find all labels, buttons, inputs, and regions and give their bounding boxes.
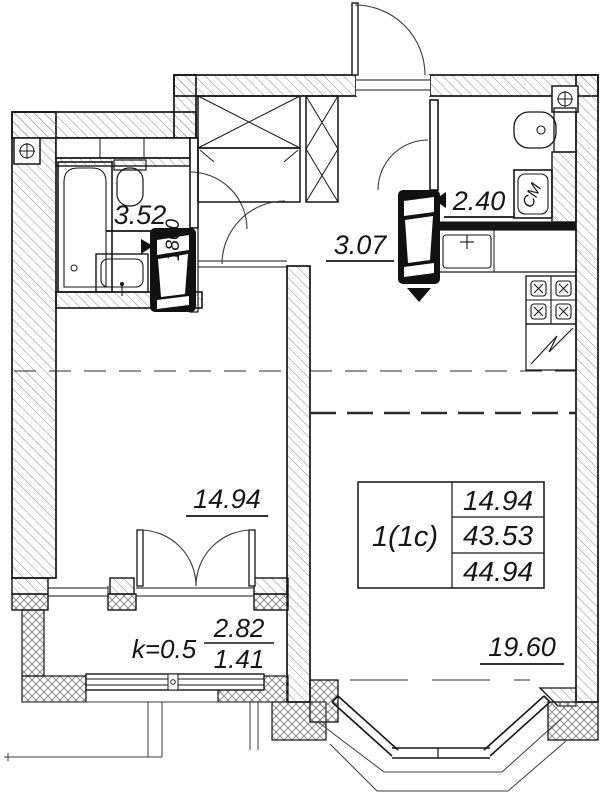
unit-type: 1(1c) <box>372 521 438 553</box>
room-area-bathroom: 3.52 <box>114 200 167 230</box>
table-total-area: 44.94 <box>463 556 533 587</box>
balcony-french-door <box>137 530 255 586</box>
door-swing-marker <box>407 288 431 302</box>
room-area-toilet: 2.40 <box>452 186 506 216</box>
wc-bottom-wall <box>430 222 576 230</box>
table-living-area: 14.94 <box>463 485 533 516</box>
entrance-door <box>352 3 430 96</box>
bay-glass <box>332 696 550 758</box>
shaft-cabinet <box>56 138 190 158</box>
floor-plan-drawing: 3.52 1800 3.07 2.40 СМ 14.94 19.60 k=0.5… <box>0 0 600 795</box>
wc-door-swing <box>378 140 428 190</box>
balcony-glazing <box>86 674 264 690</box>
bathtub-length-label: 1800 <box>163 218 184 261</box>
kitchen-sink <box>443 235 491 268</box>
room-area-living: 14.94 <box>193 484 261 514</box>
stove-icon <box>526 276 576 324</box>
balcony-area-reduced: 1.41 <box>214 644 265 674</box>
room-area-kitchen: 19.60 <box>488 632 556 662</box>
wc-left-wall <box>430 100 438 190</box>
washing-machine-label: СМ <box>520 180 546 210</box>
kitchen-counter <box>438 230 576 272</box>
balcony-coefficient: k=0.5 <box>132 634 197 664</box>
bathroom-right-wall <box>190 138 198 228</box>
fridge-icon <box>526 324 576 370</box>
balcony-area-full: 2.82 <box>213 613 265 643</box>
projection-lines <box>4 702 288 761</box>
hallway-wardrobes <box>198 96 338 267</box>
kitchen-fixtures <box>438 230 576 370</box>
balcony-door-window <box>48 586 254 598</box>
room-area-hallway: 3.07 <box>334 230 388 260</box>
bathroom-sink <box>96 254 148 296</box>
floor-plan-page: 3.52 1800 3.07 2.40 СМ 14.94 19.60 k=0.5… <box>0 0 600 795</box>
bay-outline <box>318 718 566 791</box>
wc-toilet-icon <box>514 108 576 152</box>
bay-window <box>310 680 598 791</box>
tall-wardrobe <box>306 96 338 202</box>
wc-door <box>398 190 446 302</box>
wc-shaft <box>552 152 576 222</box>
bathtub <box>58 162 112 292</box>
table-area-no-balcony: 43.53 <box>463 520 533 551</box>
hall-door-swing <box>222 201 285 264</box>
entrance-door-swing <box>355 5 425 75</box>
wardrobe <box>198 96 300 202</box>
entrance-door-leaf <box>352 3 358 75</box>
